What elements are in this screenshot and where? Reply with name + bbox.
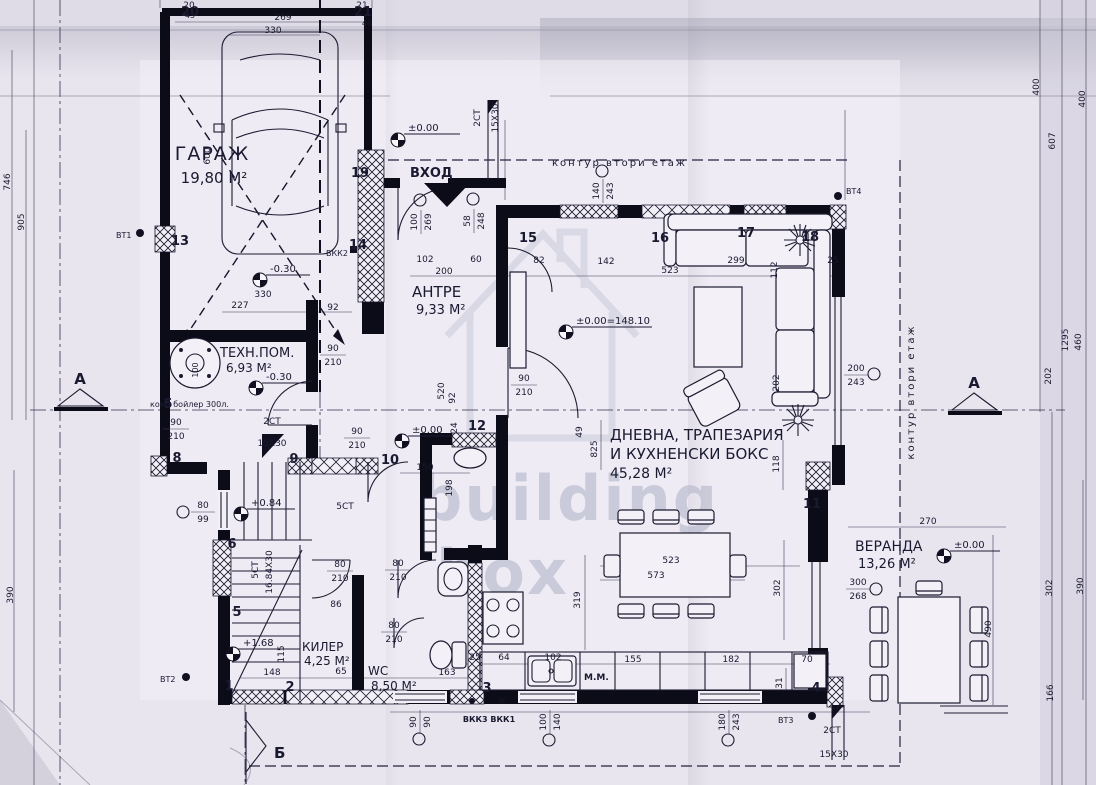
dim-label: 460 — [1074, 333, 1084, 350]
size-bottom: 210 — [167, 432, 184, 442]
axis-number: 5 — [232, 605, 241, 620]
axis-number: 1 — [224, 679, 233, 694]
level-value: -0.30 — [270, 264, 296, 275]
room-name: АНТРЕ — [412, 283, 461, 301]
size-bottom: 210 — [385, 635, 402, 645]
dim-label: 330 — [254, 290, 271, 300]
dim-label: 20 — [183, 1, 195, 11]
size-bottom: 210 — [348, 441, 365, 451]
room-area: 19,80 М² — [181, 169, 248, 187]
dim-label: 163 — [438, 668, 455, 678]
section-letter: А — [74, 370, 86, 388]
stair-label: 15X30 — [491, 103, 501, 132]
dim-label: 523 — [661, 266, 678, 276]
axis-number: 18 — [801, 230, 819, 245]
tv-cabinet — [510, 272, 526, 368]
size-top: 80 — [388, 621, 400, 631]
contour-label: контур втори етаж — [552, 158, 687, 169]
floor-plan-sheet: building box — [0, 0, 1096, 785]
dim-label: 142 — [597, 257, 614, 267]
dim-label: 270 — [919, 517, 936, 527]
axis-number: 19 — [351, 166, 369, 181]
dim-label: 148 — [263, 668, 280, 678]
axis-number: 2 — [285, 680, 294, 695]
toilet — [430, 641, 452, 669]
axis-number: 10 — [381, 453, 399, 468]
size-bottom: 210 — [324, 358, 341, 368]
dim-label: 299 — [727, 256, 744, 266]
dim-label: 607 — [1048, 132, 1058, 149]
utility-label: ВКК2 — [326, 249, 348, 258]
axis-number: 16 — [651, 231, 669, 246]
level-value: +1.68 — [243, 638, 274, 649]
level-value: +0.84 — [251, 498, 282, 509]
level-value: -0.30 — [266, 372, 292, 383]
room-name: ВЕРАНДА — [855, 539, 923, 555]
dim-label: 600 — [203, 147, 213, 164]
size-top: 200 — [847, 364, 864, 374]
room-name: ТЕХН.ПОМ. — [219, 346, 294, 361]
level-value: ±0.00 — [408, 123, 439, 134]
dim-label: 400 — [1078, 90, 1088, 107]
dim-label: 302 — [773, 579, 783, 596]
utility-label: 100 — [191, 362, 200, 377]
axis-number: 13 — [171, 234, 189, 249]
size-top: 100 — [539, 713, 549, 730]
level-value: ±0.00 — [412, 425, 443, 436]
axis-number: 17 — [737, 226, 755, 241]
size-top: 90 — [409, 716, 419, 728]
axis-number: 4 — [811, 681, 820, 696]
dim-label: 390 — [6, 586, 16, 603]
size-top: 90 — [170, 418, 182, 428]
contour-label: контур втори етаж — [906, 325, 917, 460]
dim-label: 319 — [573, 591, 583, 608]
size-top: 90 — [327, 344, 339, 354]
room-area: 9,33 М² — [416, 303, 466, 318]
dim-label: 92 — [448, 392, 458, 403]
dim-label: 825 — [590, 440, 600, 457]
window-size-marker: 180 243 — [718, 710, 742, 734]
utility-label: М.М. — [584, 673, 609, 683]
size-top: 90 — [351, 427, 363, 437]
dim-label: 198 — [445, 479, 455, 496]
utility-label: ВТ3 — [778, 716, 793, 725]
dim-label: 166 — [1046, 684, 1056, 701]
size-bottom: 99 — [197, 515, 209, 525]
size-bottom: 140 — [553, 713, 563, 730]
section-letter: Б — [274, 744, 285, 762]
dim-label: 86 — [330, 600, 342, 610]
room-name: WC — [368, 664, 388, 678]
dim-label: 490 — [984, 620, 994, 637]
dim-label: 520 — [437, 382, 447, 399]
section-marker-b — [246, 712, 266, 784]
room-name: КИЛЕР — [302, 640, 343, 654]
size-top: 90 — [518, 374, 530, 384]
dim-label: 60 — [470, 255, 482, 265]
section-letter: А — [968, 374, 980, 392]
dim-label: 1295 — [1061, 329, 1071, 352]
utility-label: ВТ4 — [846, 187, 861, 196]
axis-number: 9 — [289, 452, 298, 467]
stair-label: 5СТ — [336, 502, 354, 512]
stair-label: 15X30 — [819, 750, 848, 760]
size-bottom: 210 — [389, 573, 406, 583]
coffee-table — [694, 287, 742, 367]
dim-label: 115 — [277, 645, 287, 662]
dim-label: 905 — [17, 213, 27, 230]
dim-label: 49 — [575, 426, 585, 438]
dim-label: 155 — [624, 655, 641, 665]
size-bottom: 268 — [849, 592, 866, 602]
dim-label: 269 — [274, 13, 291, 23]
dim-label: 746 — [3, 173, 13, 190]
axis-number: 11 — [803, 497, 821, 512]
size-top: 140 — [592, 182, 602, 199]
axis-number: 12 — [468, 419, 486, 434]
dim-label: 330 — [264, 26, 281, 36]
entrance-label: ВХОД — [410, 166, 453, 181]
level-value: ±0.00=148.10 — [576, 316, 650, 327]
size-top: 300 — [849, 578, 866, 588]
dim-label: 302 — [1045, 579, 1055, 596]
room-area: 13,26 М² — [858, 557, 916, 572]
dim-label: 70 — [801, 655, 813, 665]
stair-label: 5СТ — [251, 561, 261, 579]
dim-label: 82 — [533, 256, 544, 266]
size-bottom: 269 — [424, 213, 434, 230]
dim-label: 64 — [498, 653, 510, 663]
size-bottom: 243 — [606, 182, 616, 199]
dim-label: 112 — [770, 261, 780, 278]
stair-label: 2СТ — [823, 726, 841, 736]
size-bottom: 210 — [331, 574, 348, 584]
dim-label: 182 — [722, 655, 739, 665]
washbasin — [454, 448, 486, 468]
axis-number: 15 — [519, 231, 537, 246]
dim-label: 31 — [775, 677, 785, 688]
dim-label: 24 — [450, 422, 460, 434]
dim-label: 25 — [827, 256, 838, 266]
room-area: 8,50 М² — [371, 679, 417, 693]
size-top: 80 — [197, 501, 209, 511]
dim-label: 202 — [1044, 367, 1054, 384]
stair-label: 2СТ — [263, 417, 281, 427]
dim-label: 200 — [435, 267, 452, 277]
axis-number: 8 — [172, 451, 181, 466]
dim-label: 25 — [469, 653, 480, 663]
room-area: 4,25 М² — [304, 654, 350, 668]
size-top: 180 — [718, 713, 728, 730]
window-size-marker: 100 140 — [539, 710, 563, 734]
utility-label: ВКК3 ВКК1 — [463, 715, 516, 724]
washbasin — [438, 562, 468, 596]
axis-number: 5 — [163, 397, 172, 412]
dim-label: 65 — [335, 667, 346, 677]
size-top: 58 — [463, 215, 473, 227]
size-bottom: 90 — [423, 716, 433, 728]
size-bottom: 243 — [732, 713, 742, 730]
dim-label: 523 — [662, 556, 679, 566]
dim-label: 202 — [772, 374, 782, 391]
dim-label: 390 — [1076, 577, 1086, 594]
stove — [483, 592, 523, 644]
stair-label: 16.84X30 — [265, 550, 275, 594]
room-area: 6,93 М² — [226, 361, 272, 375]
dim-label: 92 — [327, 303, 338, 313]
dim-label: 118 — [772, 455, 782, 472]
window-size-marker: 90 90 — [409, 710, 433, 734]
section-marker-a-right — [948, 393, 1002, 415]
axis-number: 14 — [349, 238, 367, 253]
room-name: ДНЕВНА, ТРАПЕЗАРИЯ — [610, 426, 784, 444]
axis-number: 6 — [227, 537, 236, 552]
room-area: 45,28 М² — [610, 466, 672, 482]
room-name: И КУХНЕНСКИ БОКС — [610, 445, 768, 463]
dim-label: 573 — [647, 571, 664, 581]
stair-label: 15X30 — [257, 439, 286, 449]
dim-label: 400 — [1032, 78, 1042, 95]
dim-label: 21 — [356, 1, 367, 11]
utility-label: ВТ1 — [116, 231, 131, 240]
dim-label: 45 — [185, 11, 195, 20]
level-value: ±0.00 — [954, 540, 985, 551]
room-note: комб бойлер 300л. — [150, 400, 229, 409]
utility-label: ВТ2 — [160, 675, 175, 684]
size-bottom: 248 — [477, 212, 487, 229]
axis-number: 3 — [482, 681, 491, 696]
dim-label: 102 — [544, 653, 561, 663]
size-top: 80 — [334, 560, 346, 570]
size-top: 80 — [392, 559, 404, 569]
stair-label: 2СТ — [473, 109, 483, 127]
dim-label: 46 — [362, 19, 372, 28]
dim-label: 102 — [416, 255, 433, 265]
section-marker-a-left — [54, 389, 108, 411]
floor-plan-drawing: building box — [0, 0, 1096, 785]
size-top: 100 — [410, 213, 420, 230]
size-bottom: 243 — [847, 378, 864, 388]
radiator — [424, 498, 436, 552]
dim-label: 227 — [231, 301, 248, 311]
size-bottom: 210 — [515, 388, 532, 398]
dim-label: 150 — [416, 463, 433, 473]
